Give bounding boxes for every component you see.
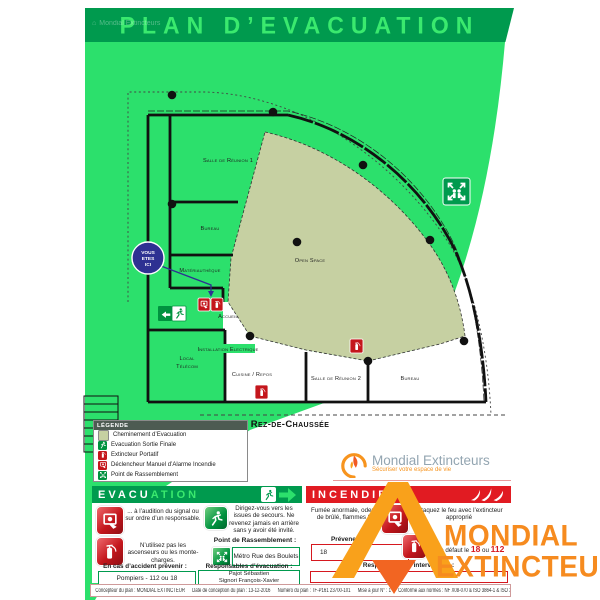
room-label-reunion2: Salle de Réunion 2 — [311, 376, 361, 382]
assembly-point-icon — [443, 178, 470, 205]
poster: Salle de Réunion 1 Bureau Matériauthèque… — [0, 0, 600, 600]
accident-value: Pompiers - 112 ou 18 — [98, 571, 196, 585]
footer-item: Date de conception du plan : 13-12-2016 — [192, 588, 270, 594]
alarm-icon — [198, 298, 210, 311]
legend-item: Evacuation Sortie Finale — [94, 440, 247, 450]
arrow-right-icon — [279, 488, 296, 502]
assembly-label: Point de Rassemblement : — [210, 537, 300, 545]
evacuation-instruction: Dirigez-vous vers les issues de secours.… — [228, 505, 300, 534]
alarm-icon — [96, 506, 124, 535]
legend-item: Point de Rassemblement — [94, 470, 247, 480]
legend-item: Cheminement d’Evacuation — [94, 430, 247, 440]
header-brand-watermark: ⌂ Mondial Extincteurs — [92, 20, 160, 27]
responsables-evacuation-value: Pajot Sébastien Signori François-Xavier — [198, 570, 300, 585]
alarm-icon — [98, 461, 107, 470]
flames-icon — [469, 487, 505, 502]
extinguisher-icon — [98, 451, 107, 460]
room-label-accueil: Accueil — [218, 314, 238, 320]
legend-item: Déclencheur Manuel d’Alarme Incendie — [94, 460, 247, 470]
evacuation-panel: EVACUATION ... à l’audition du signal ou… — [92, 486, 302, 583]
legend-title: LÉGENDE — [94, 421, 247, 430]
mondial-logo-icon — [340, 450, 368, 478]
svg-text:ETES: ETES — [142, 256, 155, 262]
room-label-bureau2: Bureau — [401, 376, 420, 382]
footer-item: Concepteur du plan : MONDIAL EXTINCTEUR — [95, 588, 185, 594]
exit-run-icon — [204, 506, 228, 530]
room-label-bureau1: Bureau — [201, 226, 220, 232]
room-label-installation-electrique: Installation Electrique — [197, 347, 258, 353]
evacuation-title: EVACUATION — [98, 489, 199, 501]
watermark-text-line2: EXTINCTEUR — [436, 550, 600, 584]
evacuation-instruction: ... à l’audition du signal ou sur ordre … — [125, 508, 201, 523]
floor-label: Rez-de-Chaussée — [251, 419, 330, 430]
exit-icon — [261, 487, 276, 502]
house-icon: ⌂ — [92, 20, 96, 27]
room-label-materiautheque: Matériauthèque — [179, 268, 220, 274]
exit-icon — [98, 441, 107, 450]
brand-logo: Mondial Extincteurs Sécuriser votre espa… — [340, 447, 512, 480]
page-title: PLAN D’EVACUATION — [120, 11, 480, 39]
evacuation-header: EVACUATION — [92, 486, 302, 503]
room-label-local-telecom: Local — [179, 356, 195, 362]
extinguisher-icon — [350, 339, 363, 353]
brand-name: Mondial Extincteurs — [372, 454, 490, 468]
room-label-cuisine-repos: Cuisine / Repos — [232, 372, 272, 378]
assembly-point-icon — [98, 471, 107, 480]
brand-tagline: Sécuriser votre espace de vie — [372, 467, 490, 473]
room-label-local-telecom-2: Télécom — [176, 364, 198, 370]
extinguisher-icon — [211, 298, 223, 311]
svg-text:VOUS: VOUS — [141, 250, 155, 256]
exit-sign-icon — [158, 306, 186, 321]
legend: LÉGENDE Cheminement d’Evacuation Evacuat… — [93, 420, 248, 482]
watermark-text-line1: MONDIAL — [444, 519, 578, 553]
no-elevator-icon — [96, 537, 124, 566]
evacuation-instruction: N’utilisez pas les ascenseurs ou les mon… — [125, 542, 201, 564]
room-label-reunion1: Salle de Réunion 1 — [203, 158, 253, 164]
legend-item: Extincteur Portatif — [94, 450, 247, 460]
extinguisher-icon — [255, 385, 268, 399]
accident-label: En cas d’accident prévenir : — [94, 563, 196, 570]
room-label-open-space: Open Space — [295, 258, 326, 264]
svg-text:ICI: ICI — [145, 262, 152, 268]
evacuation-path-chip — [98, 430, 109, 441]
